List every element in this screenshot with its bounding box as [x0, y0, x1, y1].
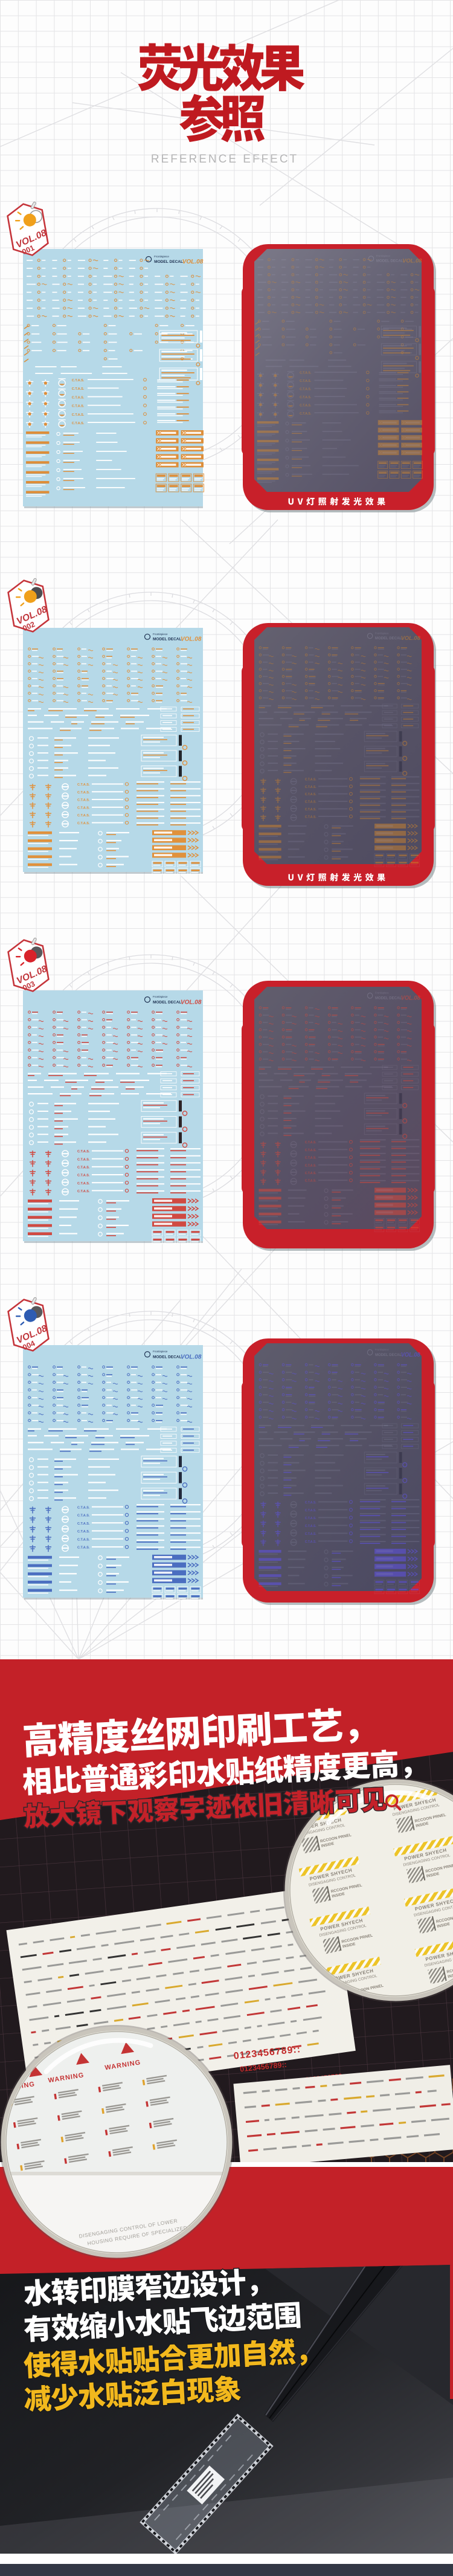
svg-text:REFERENCE EFFECT: REFERENCE EFFECT [151, 153, 298, 166]
